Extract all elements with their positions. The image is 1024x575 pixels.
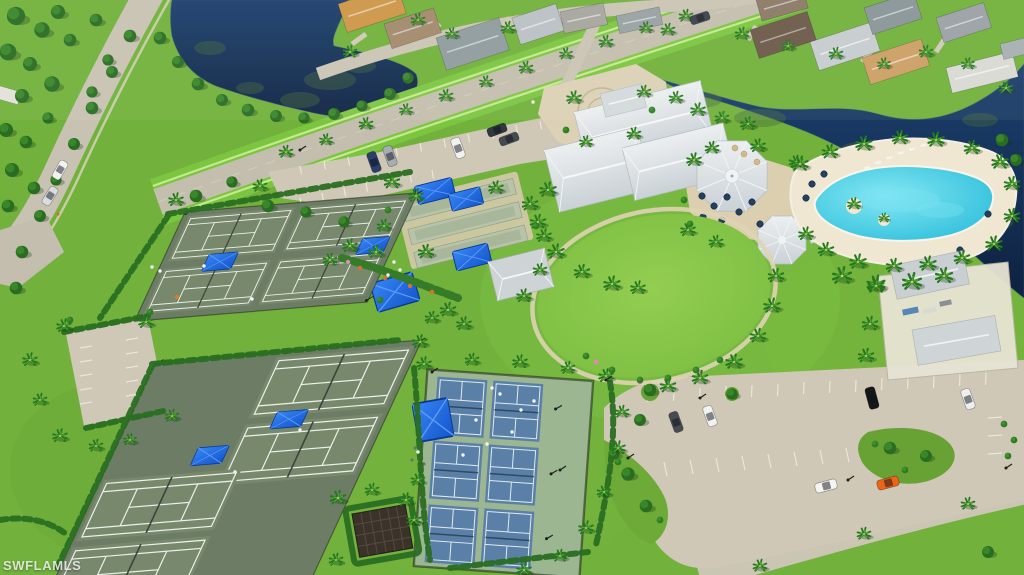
aerial-scene (0, 0, 1024, 575)
photo-haze (0, 0, 1024, 120)
pickleball-court (425, 504, 479, 565)
aerial-photo: SWFLAMLS (0, 0, 1024, 575)
pickleball-court (489, 381, 543, 442)
watermark: SWFLAMLS (3, 558, 81, 573)
pickleball-complex (411, 369, 594, 575)
pickleball-court (429, 441, 483, 502)
pickleball-court (485, 444, 539, 505)
